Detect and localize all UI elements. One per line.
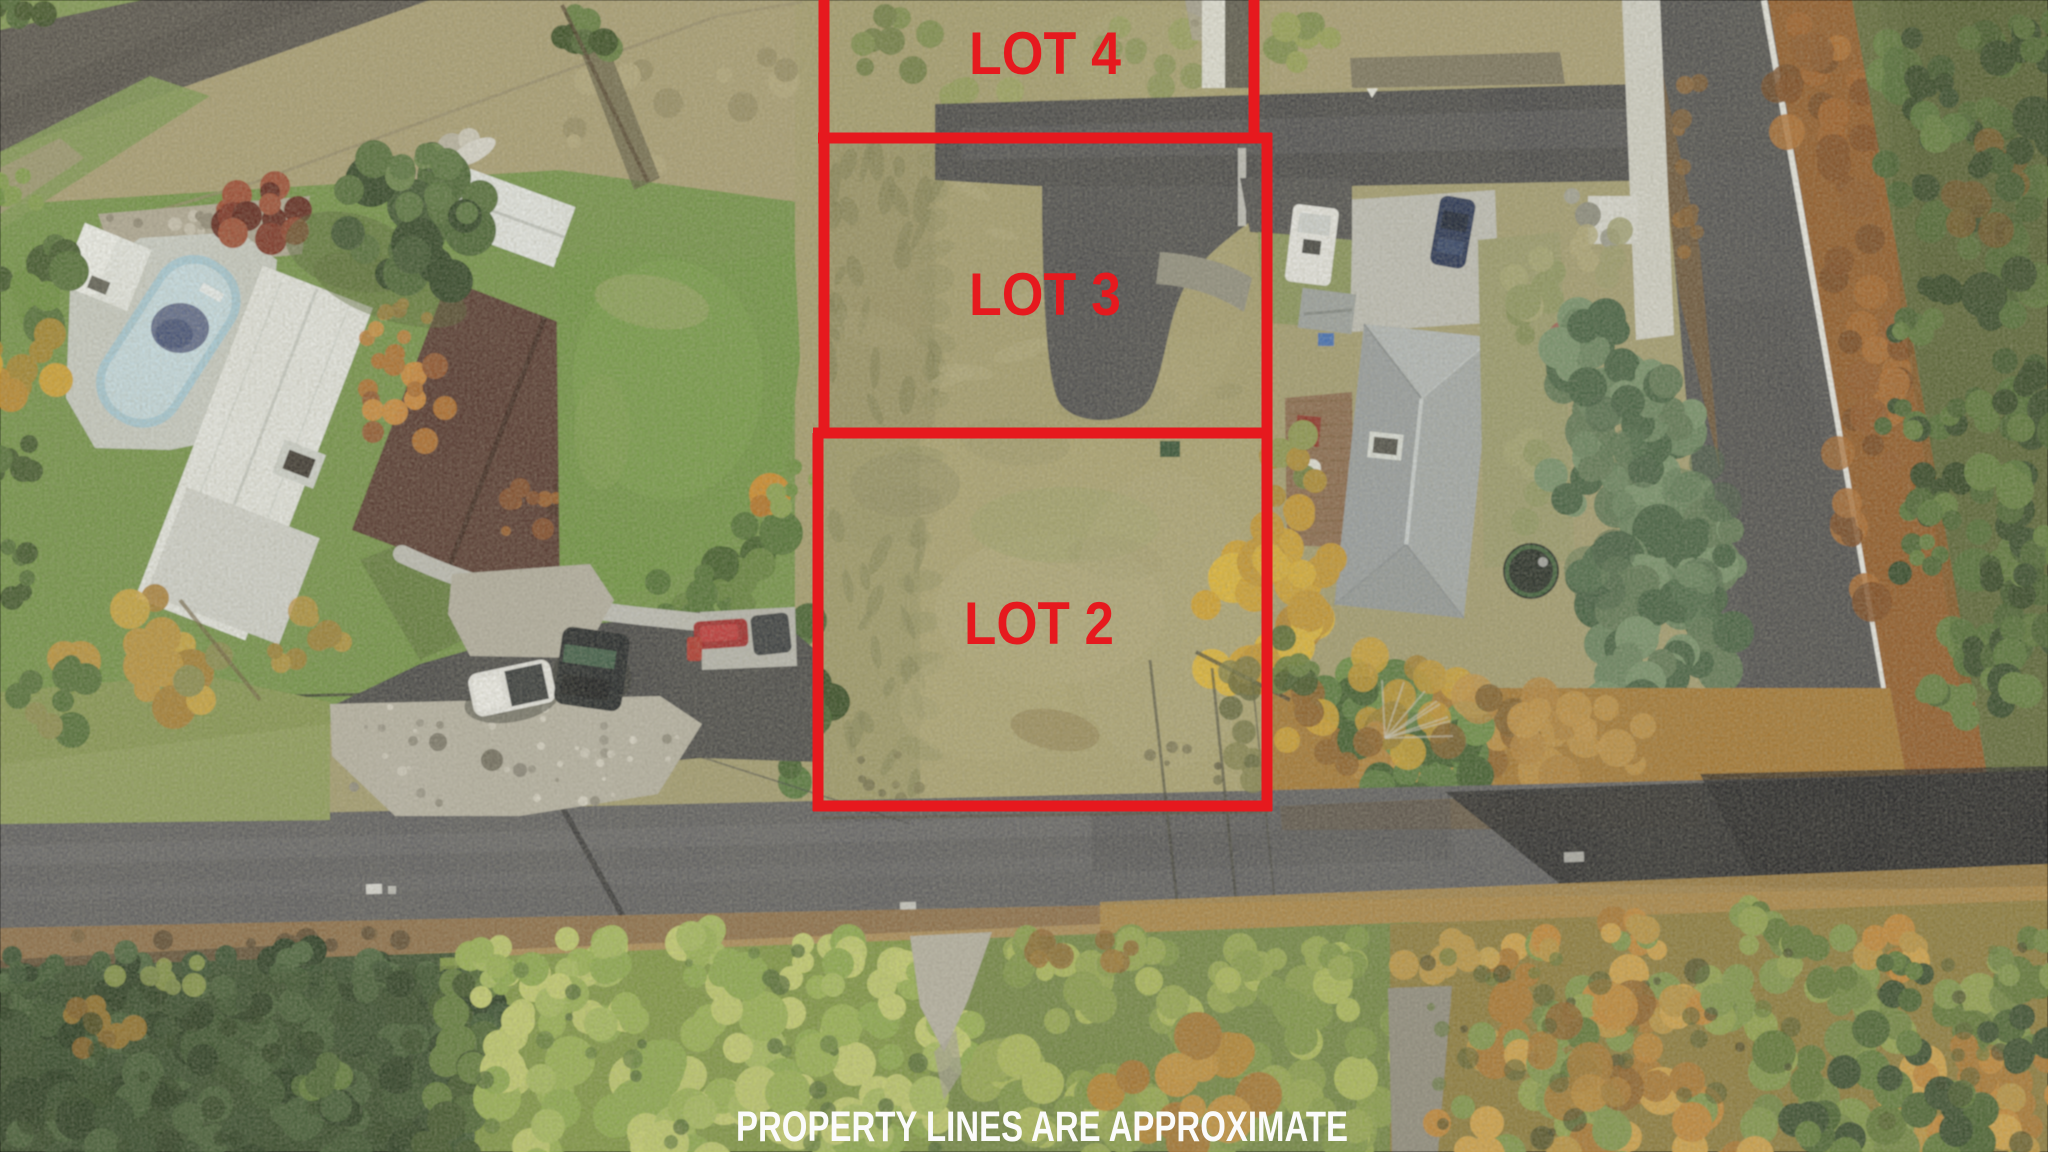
svg-text:LOT 4: LOT 4 xyxy=(969,20,1122,87)
svg-text:PROPERTY LINES ARE APPROXIMATE: PROPERTY LINES ARE APPROXIMATE xyxy=(736,1103,1348,1151)
svg-text:LOT 2: LOT 2 xyxy=(964,590,1114,657)
svg-text:LOT 3: LOT 3 xyxy=(969,261,1121,328)
